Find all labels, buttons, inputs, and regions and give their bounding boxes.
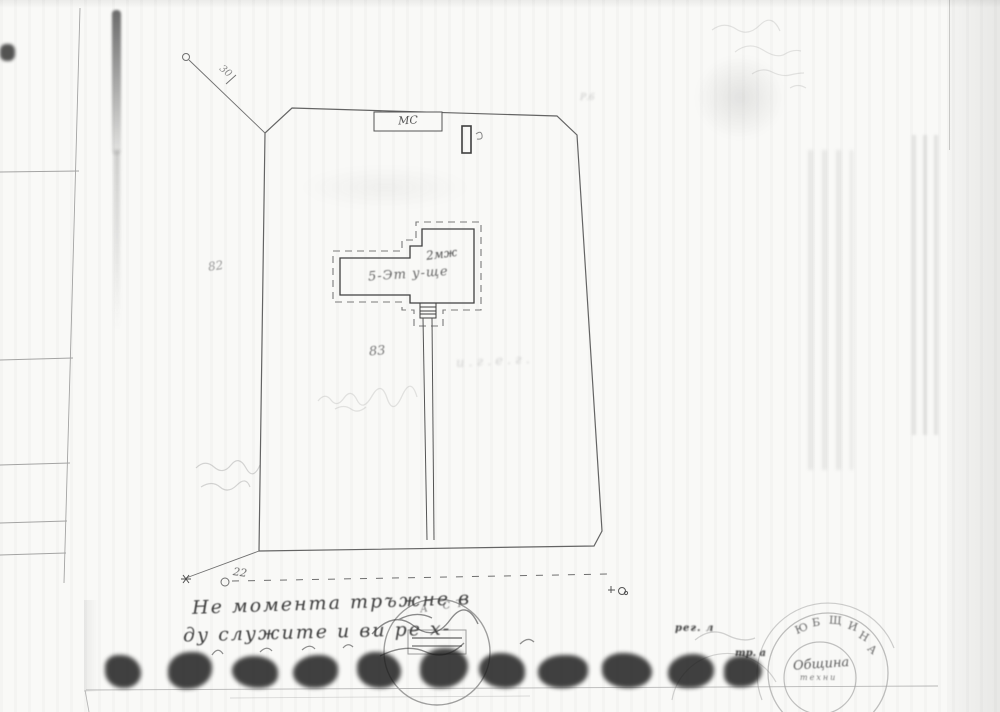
scanned-site-plan-document: 82 83 2мж 5-Эт у-ще МС 30 22 Р.6 и.г.е.г… xyxy=(0,0,1000,712)
walkway xyxy=(423,318,434,540)
toner-blob xyxy=(538,655,588,688)
municipal-inner-small: техни xyxy=(800,673,837,682)
dimension-bottom-left: 22 xyxy=(232,565,248,580)
survey-tie-bottom xyxy=(181,551,628,595)
municipal-arc-letter-sht: Щ xyxy=(829,614,842,628)
small-structure-rect xyxy=(462,126,482,153)
parcel-boundary xyxy=(259,108,602,551)
entrance-stairs xyxy=(420,303,436,318)
illegible-faint-caption xyxy=(318,386,417,411)
toner-blob xyxy=(105,655,141,688)
toner-blob xyxy=(357,652,401,688)
illegible-scribble-top-right xyxy=(712,20,806,88)
toner-blob xyxy=(293,655,338,688)
mark-top-right: Р.6 xyxy=(580,93,595,103)
parcel-number-center: 83 xyxy=(368,343,386,359)
toner-blob xyxy=(668,654,714,688)
left-margin-rules xyxy=(0,8,80,583)
parcel-number-left: 82 xyxy=(207,258,224,274)
small-structure-mark xyxy=(476,132,482,139)
end-mark xyxy=(608,586,628,595)
illegible-scribble-left-margin xyxy=(196,461,260,490)
stamp-fragment-reg: рег. л xyxy=(675,623,714,634)
page-bottom-edge xyxy=(85,686,938,712)
toner-blob xyxy=(602,653,652,688)
star-mark xyxy=(181,575,191,583)
